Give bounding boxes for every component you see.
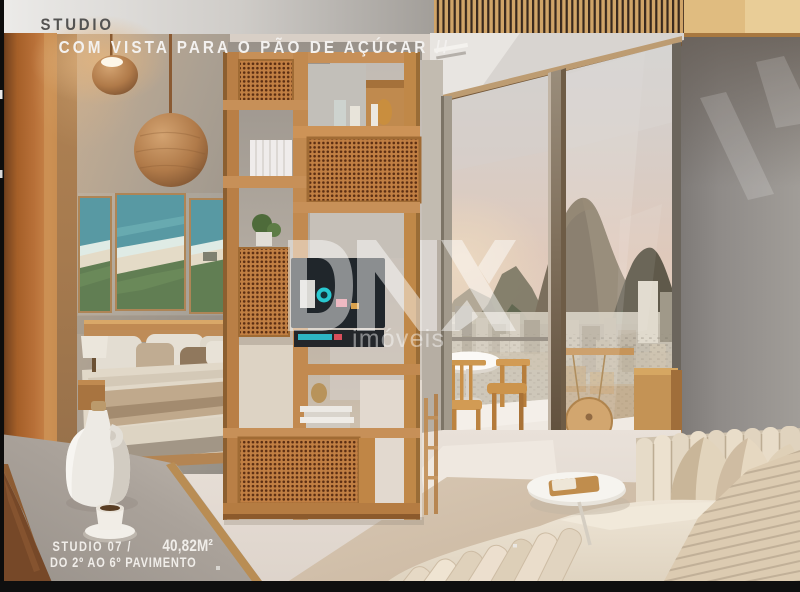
svg-text:STUDIO: STUDIO xyxy=(40,16,113,34)
svg-text:40,82M²: 40,82M² xyxy=(162,537,213,556)
svg-text:imóveis: imóveis xyxy=(352,325,445,353)
svg-text:DO 2º AO 6º PAVIMENTO: DO 2º AO 6º PAVIMENTO xyxy=(50,555,197,570)
svg-text:COM VISTA PARA O PÃO DE AÇÚCAR: COM VISTA PARA O PÃO DE AÇÚCAR // xyxy=(59,36,451,58)
svg-text:STUDIO 07 /: STUDIO 07 / xyxy=(52,539,132,554)
